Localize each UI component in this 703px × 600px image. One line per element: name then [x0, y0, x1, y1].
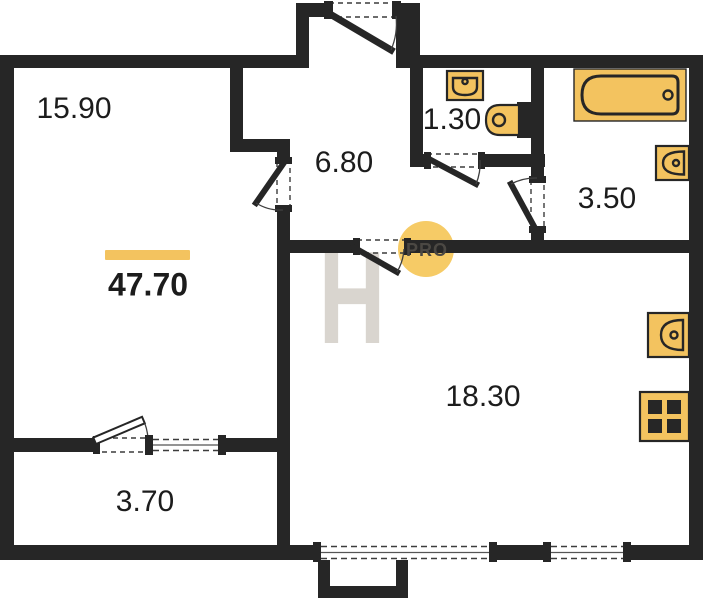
floor-plan: H — [0, 0, 703, 600]
area-label-hallway: 6.80 — [315, 146, 373, 180]
area-label-bathroom: 3.50 — [578, 182, 636, 216]
pro-badge-label: PRO — [406, 240, 448, 260]
balcony-door — [93, 417, 145, 444]
bathtub-icon — [574, 69, 686, 121]
kitchen-sink-icon — [648, 313, 689, 357]
washbasin-icon — [447, 71, 483, 100]
total-area-underline — [105, 250, 190, 260]
bathroom-door — [511, 184, 536, 230]
living-room-door — [256, 164, 283, 203]
area-label-living-room: 15.90 — [36, 92, 111, 126]
floor-plan-canvas: H — [0, 0, 703, 600]
total-area-label: 47.70 — [108, 267, 188, 304]
area-label-wc: 1.30 — [423, 103, 481, 137]
entrance-door — [330, 14, 391, 50]
bathroom-sink-icon — [656, 146, 689, 180]
toilet-icon — [486, 102, 537, 138]
stove-icon — [640, 392, 689, 441]
area-label-kitchen-living: 18.30 — [445, 380, 520, 414]
wc-door — [429, 159, 476, 184]
windows — [145, 435, 631, 562]
area-label-balcony: 3.70 — [116, 485, 174, 519]
